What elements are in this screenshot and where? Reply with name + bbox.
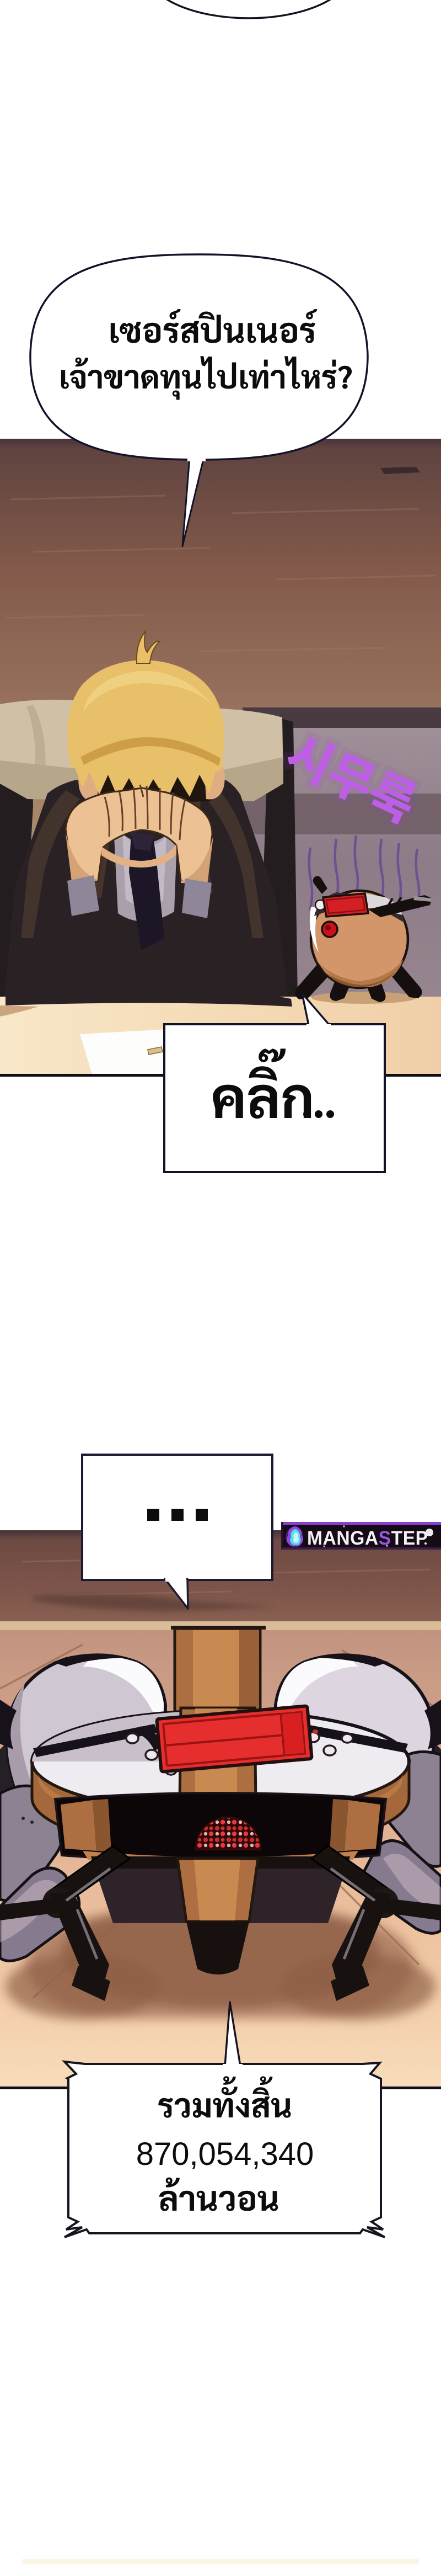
svg-text:MANGASTEP: MANGASTEP <box>307 1527 428 1549</box>
svg-text:870,054,340: 870,054,340 <box>136 2136 314 2172</box>
